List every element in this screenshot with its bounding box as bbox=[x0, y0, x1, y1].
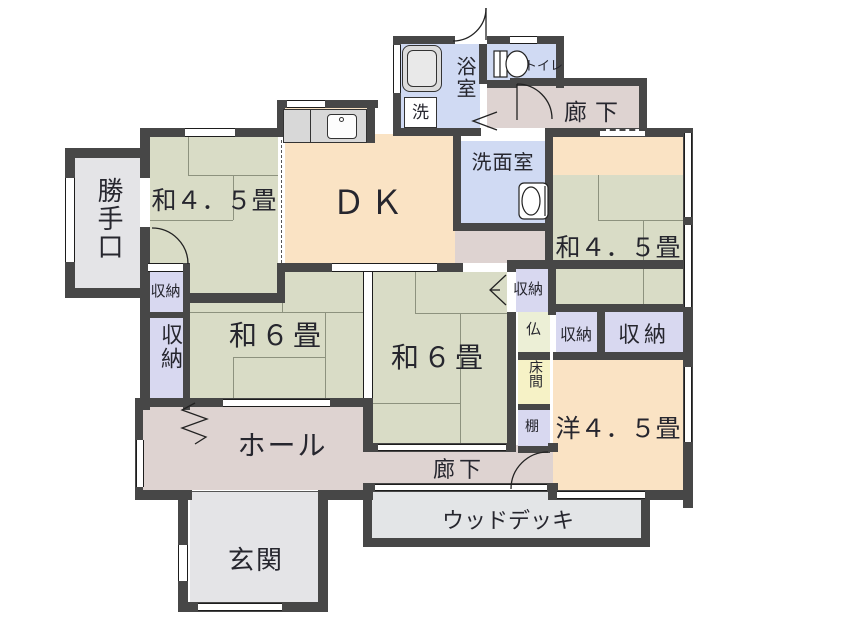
window bbox=[684, 367, 692, 442]
room-label-butsuma: 仏 bbox=[526, 318, 541, 339]
tatami-line bbox=[598, 175, 599, 220]
tatami-line bbox=[188, 136, 189, 176]
room-label-genkan: 玄関 bbox=[222, 540, 290, 577]
window bbox=[684, 133, 692, 217]
tatami-line bbox=[233, 357, 234, 402]
room-label-hallway-bottom: 廊下 bbox=[426, 452, 492, 484]
window bbox=[178, 545, 188, 581]
window bbox=[684, 225, 692, 307]
wall bbox=[479, 44, 487, 84]
room-wa45-top-right-veranda bbox=[553, 136, 683, 175]
sliding-door bbox=[363, 272, 373, 398]
kitchen-counter-divider bbox=[310, 109, 311, 143]
window bbox=[510, 36, 537, 44]
room-label-hallway-top: 廊下 bbox=[550, 93, 640, 127]
room-label-closet-right: 収納 bbox=[606, 317, 682, 349]
wall bbox=[393, 128, 481, 136]
room-label-tana: 棚 bbox=[525, 416, 539, 436]
wall bbox=[597, 312, 605, 356]
wall bbox=[639, 78, 647, 134]
window bbox=[65, 178, 75, 262]
room-label-wa6-left: 和６畳 bbox=[226, 314, 328, 354]
room-label-wa6-center: 和６畳 bbox=[388, 336, 490, 376]
tatami-line bbox=[233, 357, 325, 358]
room-label-wa45-top-left: 和４．５畳 bbox=[148, 181, 280, 217]
wall bbox=[367, 103, 375, 143]
door-arc-top-exterior bbox=[453, 8, 486, 41]
wall bbox=[641, 498, 650, 545]
washing-machine-icon: 洗 bbox=[404, 97, 437, 128]
wall bbox=[518, 404, 550, 410]
tatami-line bbox=[415, 272, 416, 313]
window bbox=[136, 440, 144, 487]
tatami-line bbox=[460, 313, 461, 445]
wall bbox=[363, 407, 373, 452]
room-label-bathroom: 浴室 bbox=[450, 56, 479, 100]
room-label-yo45: 洋４．５畳 bbox=[553, 409, 683, 445]
room-label-washroom: 洗面室 bbox=[461, 146, 545, 175]
room-label-closet-small-right: 収納 bbox=[508, 278, 548, 299]
tatami-line bbox=[415, 313, 508, 314]
window bbox=[185, 128, 235, 137]
room-label-katteguchi: 勝手口 bbox=[90, 177, 127, 261]
wall bbox=[548, 304, 693, 312]
sliding-door bbox=[223, 399, 330, 407]
wall bbox=[393, 36, 455, 44]
floor-plan: 洗 勝手口 和４．５畳 ＤＫ 浴室 トイレ 廊下 洗面室 和４．５畳 収納 収納… bbox=[0, 0, 847, 635]
wall bbox=[65, 148, 150, 158]
wall bbox=[510, 78, 647, 86]
tatami-line bbox=[373, 403, 460, 404]
window bbox=[557, 491, 645, 499]
window bbox=[393, 45, 401, 93]
room-label-hall: ホール bbox=[225, 424, 340, 464]
wall bbox=[363, 538, 650, 547]
wall bbox=[545, 128, 553, 228]
dashed-opening-dk bbox=[281, 140, 283, 263]
tatami-line bbox=[188, 312, 366, 313]
washing-machine-label: 洗 bbox=[412, 103, 429, 122]
wall bbox=[518, 446, 550, 453]
sliding-door bbox=[198, 603, 282, 611]
room-corridor-strip bbox=[455, 231, 553, 263]
wall bbox=[183, 293, 285, 303]
window bbox=[287, 100, 325, 108]
room-label-closet-small-left: 収納 bbox=[146, 280, 185, 301]
room-label-closet-left: 収納 bbox=[154, 323, 186, 371]
sliding-door bbox=[378, 444, 506, 451]
wall bbox=[135, 490, 192, 500]
genkan-step-line bbox=[192, 491, 318, 492]
room-label-dk: ＤＫ bbox=[285, 176, 455, 224]
dashed-opening bbox=[600, 129, 645, 136]
room-label-closet-mid: 収納 bbox=[554, 321, 598, 345]
tatami-line bbox=[598, 220, 683, 221]
closet-door bbox=[148, 263, 183, 272]
bathtub-inner-icon bbox=[407, 50, 437, 87]
sliding-door bbox=[332, 263, 437, 272]
wall bbox=[65, 288, 150, 298]
room-label-wood-deck: ウッドデッキ bbox=[428, 503, 588, 535]
tatami-line bbox=[150, 220, 233, 221]
room-label-wa45-top-right: 和４．５畳 bbox=[553, 228, 683, 264]
sliding-door bbox=[375, 484, 547, 491]
room-label-toilet: トイレ bbox=[524, 55, 563, 74]
room-label-tokonoma: 床間 bbox=[524, 360, 544, 388]
kitchen-faucet-icon bbox=[339, 117, 344, 122]
wall bbox=[143, 312, 188, 318]
wall bbox=[553, 352, 693, 360]
wall bbox=[518, 352, 550, 360]
wall bbox=[318, 490, 328, 610]
wall bbox=[453, 223, 553, 231]
